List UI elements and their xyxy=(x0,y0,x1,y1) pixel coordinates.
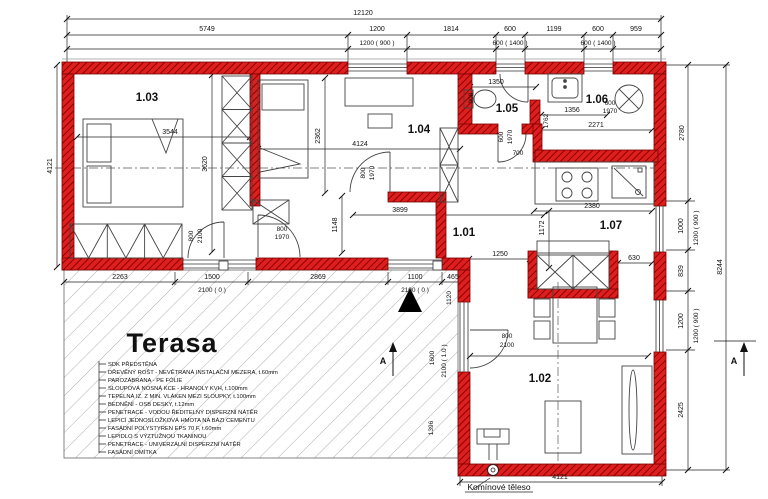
kitchen-sink xyxy=(612,166,646,198)
stove xyxy=(556,168,598,201)
dim-kitchen-depth: 1172 xyxy=(539,220,546,235)
wall-wing-left xyxy=(458,270,470,302)
dim-door-105-h: 1970 xyxy=(507,129,514,144)
room-label-105: 1.05 xyxy=(496,103,519,115)
note-line: LEPIDLO S VÝZTUŽNOU TKANINOU xyxy=(108,432,206,440)
note-line: DŘEVĚNÝ ROŠT - NEVĚTRANÁ INSTALAČNÍ MEZE… xyxy=(108,368,278,376)
dim-107-left: 1250 xyxy=(492,251,508,258)
dim-103-bed: 3544 xyxy=(162,129,178,136)
desk-104 xyxy=(345,78,413,128)
wall-top xyxy=(407,62,496,74)
wall-right xyxy=(654,74,666,206)
room-label-107: 1.07 xyxy=(600,220,622,232)
dim-104-width: 4124 xyxy=(352,141,368,148)
note-line: PENETRACE - VODOU ŘEDITELNÝ DISPERZNÍ NÁ… xyxy=(108,408,258,416)
window-top-2 xyxy=(496,64,525,71)
dim-right-seg: 839 xyxy=(678,265,685,277)
wall-top xyxy=(62,62,348,74)
dim-hall-width: 3899 xyxy=(392,207,408,214)
dim-top-window: 600 ( 1400 ) xyxy=(492,40,527,47)
window-right-2 xyxy=(656,300,663,352)
dim-door-102-h: 2100 xyxy=(500,342,515,349)
dim-top-window: 600 ( 1400 ) xyxy=(580,40,615,47)
terrace-title: Terasa xyxy=(126,328,217,358)
room-label-102: 1.02 xyxy=(529,373,551,385)
washing-machine-106 xyxy=(615,85,643,113)
dim-door-102-w: 800 xyxy=(502,333,513,340)
dim-top-seg: 1814 xyxy=(443,26,459,33)
dim-right-window: 1200 ( 900 ) xyxy=(693,210,700,245)
wardrobe-103-bottom xyxy=(70,224,182,258)
wall-top xyxy=(525,62,584,74)
closet-wall xyxy=(528,289,618,298)
dim-top-seg: 600 xyxy=(504,26,516,33)
wall-terrace xyxy=(256,258,388,270)
dim-top-seg: 959 xyxy=(630,26,642,33)
door-frame-marker xyxy=(219,261,228,270)
dim-right-seg: 2780 xyxy=(679,125,686,141)
dim-terrace: 2869 xyxy=(310,274,326,281)
wall-interior xyxy=(388,192,446,202)
note-line: PENETRACE - UNIVERZÁLNÍ DISPERZNÍ NÁTĚR xyxy=(108,440,241,448)
wall-right xyxy=(654,352,666,464)
dim-terrace: 1120 xyxy=(446,291,453,305)
dim-105-width: 1350 xyxy=(488,79,504,86)
room-label-104: 1.04 xyxy=(408,124,431,136)
room-label-101: 1.01 xyxy=(453,227,476,239)
chimney-label: Komínové těleso xyxy=(467,482,531,492)
dim-right-seg: 1200 xyxy=(678,313,685,329)
dim-106-sink: 1356 xyxy=(564,107,580,114)
section-label: A xyxy=(380,356,387,366)
chimney-callout: Komínové těleso xyxy=(465,478,533,492)
dim-kitchen-counter: 2380 xyxy=(584,203,600,210)
dim-right-window: 1200 ( 900 ) xyxy=(693,308,700,343)
wall-terrace xyxy=(442,258,470,270)
wall-wing-left xyxy=(458,372,470,464)
door-frame-marker xyxy=(433,261,442,270)
wardrobe-103-tall xyxy=(222,76,252,210)
dim-door-103-w: 800 xyxy=(188,230,195,241)
dim-terrace: 465 xyxy=(447,274,459,281)
dim-102-wall: 1396 xyxy=(428,420,435,435)
dim-right-seg: 2425 xyxy=(678,402,685,418)
dim-left-total: 4121 xyxy=(47,158,54,174)
dim-103-depth: 3620 xyxy=(202,156,209,172)
dim-right-seg: 1000 xyxy=(678,218,685,234)
dim-hall-depth: 1148 xyxy=(332,217,339,232)
wardrobe-104-nook xyxy=(440,128,458,202)
dim-door-105-w: 600 xyxy=(498,131,505,142)
note-line: PAROZÁBRANA - PE FÓLIE xyxy=(108,377,182,384)
section-label: A xyxy=(731,356,738,366)
dim-door-104-h: 1970 xyxy=(369,165,376,180)
terrace-window-102 xyxy=(460,302,468,372)
dim-nook: 700 xyxy=(513,150,524,157)
floor-plan-drawing: A A 12120 5749 1200 1814 600 1199 600 95… xyxy=(0,0,768,499)
coffee-table-102 xyxy=(545,401,581,453)
dim-total-width: 12120 xyxy=(353,10,373,17)
room-label-103: 1.03 xyxy=(136,92,158,104)
wardrobe-corridor xyxy=(253,200,289,224)
wall-interior xyxy=(250,74,260,206)
note-line: FASÁDNÍ OMÍTKA xyxy=(108,449,157,456)
window-top-1 xyxy=(348,64,407,71)
sink-106 xyxy=(548,74,582,102)
section-marker-right: A xyxy=(714,341,756,376)
dim-106-depth: 1762 xyxy=(543,113,550,128)
wall-interior xyxy=(436,202,446,258)
dim-bottom-total: 4121 xyxy=(552,474,568,481)
dim-104-depth: 2362 xyxy=(315,128,322,144)
dim-terrace-door-w: 1500 xyxy=(204,274,220,281)
dim-top-seg: 1199 xyxy=(546,26,561,33)
room-label-106: 1.06 xyxy=(586,94,608,106)
dim-door-106-h: 1970 xyxy=(603,108,618,115)
wall-interior xyxy=(535,150,658,162)
dim-top-seg: 1200 xyxy=(369,26,385,33)
note-line: BEDNĚNÍ - OSB DESKY, t.12mm xyxy=(108,400,194,408)
note-line: TEPELNÁ IZ. Z MIN. VLÁKEN MEZI SLOUPKY, … xyxy=(108,393,256,400)
window-right-1 xyxy=(656,206,663,252)
dim-terrace-window-h: 2100 ( 1.0 ) xyxy=(441,344,448,377)
dim-top-window: 1200 ( 900 ) xyxy=(359,40,394,47)
dim-entrance-w: 1100 xyxy=(407,274,422,281)
dim-top-seg: 5749 xyxy=(199,26,215,33)
wall-interior xyxy=(458,124,498,134)
fireplace-102 xyxy=(477,429,509,460)
wall-left xyxy=(62,74,74,270)
dim-terrace: 2263 xyxy=(112,274,128,281)
dim-door-103-h: 2100 xyxy=(197,228,204,243)
dim-105-depth: 908 xyxy=(468,92,475,103)
dim-terrace-window-w: 1600 xyxy=(429,350,436,365)
floor-plan: A A 12120 5749 1200 1814 600 1199 600 95… xyxy=(0,0,768,499)
wall-right xyxy=(654,252,666,300)
dim-top-seg: 600 xyxy=(592,26,604,33)
bed-single-104 xyxy=(258,80,308,178)
note-line: FASÁDNÍ POLYSTYREN EPS 70 F, t.60mm xyxy=(108,425,221,432)
wall-interior xyxy=(530,100,540,126)
note-line: SDK PŘEDSTĚNA xyxy=(108,360,157,368)
dim-107-right: 630 xyxy=(628,255,640,262)
closet-107 xyxy=(537,241,609,289)
chimney-symbol xyxy=(488,465,499,476)
note-line: LEPICÍ JEDNOSLOŽKOVÁ HMOTA NA BÁZI CEMEN… xyxy=(108,416,255,424)
dim-door-104-w: 800 xyxy=(360,167,367,178)
sofa-102 xyxy=(622,366,652,454)
dim-106-width: 2271 xyxy=(588,122,604,129)
dim-entrance-h: 2100 ( 0 ) xyxy=(401,287,429,294)
dim-door-101-w: 800 xyxy=(277,226,288,233)
window-top-3 xyxy=(584,64,613,71)
dim-right-total: 8244 xyxy=(717,259,724,275)
door-106 xyxy=(500,74,528,102)
dim-terrace-door-h: 2100 ( 0 ) xyxy=(198,287,226,294)
note-line: SLOUPOVÁ NOSNÁ KCE - HRANOLY KVH, t.100m… xyxy=(108,385,248,392)
dim-door-101-h: 1970 xyxy=(275,234,290,241)
wall-terrace xyxy=(62,258,183,270)
wall-top xyxy=(613,62,666,74)
